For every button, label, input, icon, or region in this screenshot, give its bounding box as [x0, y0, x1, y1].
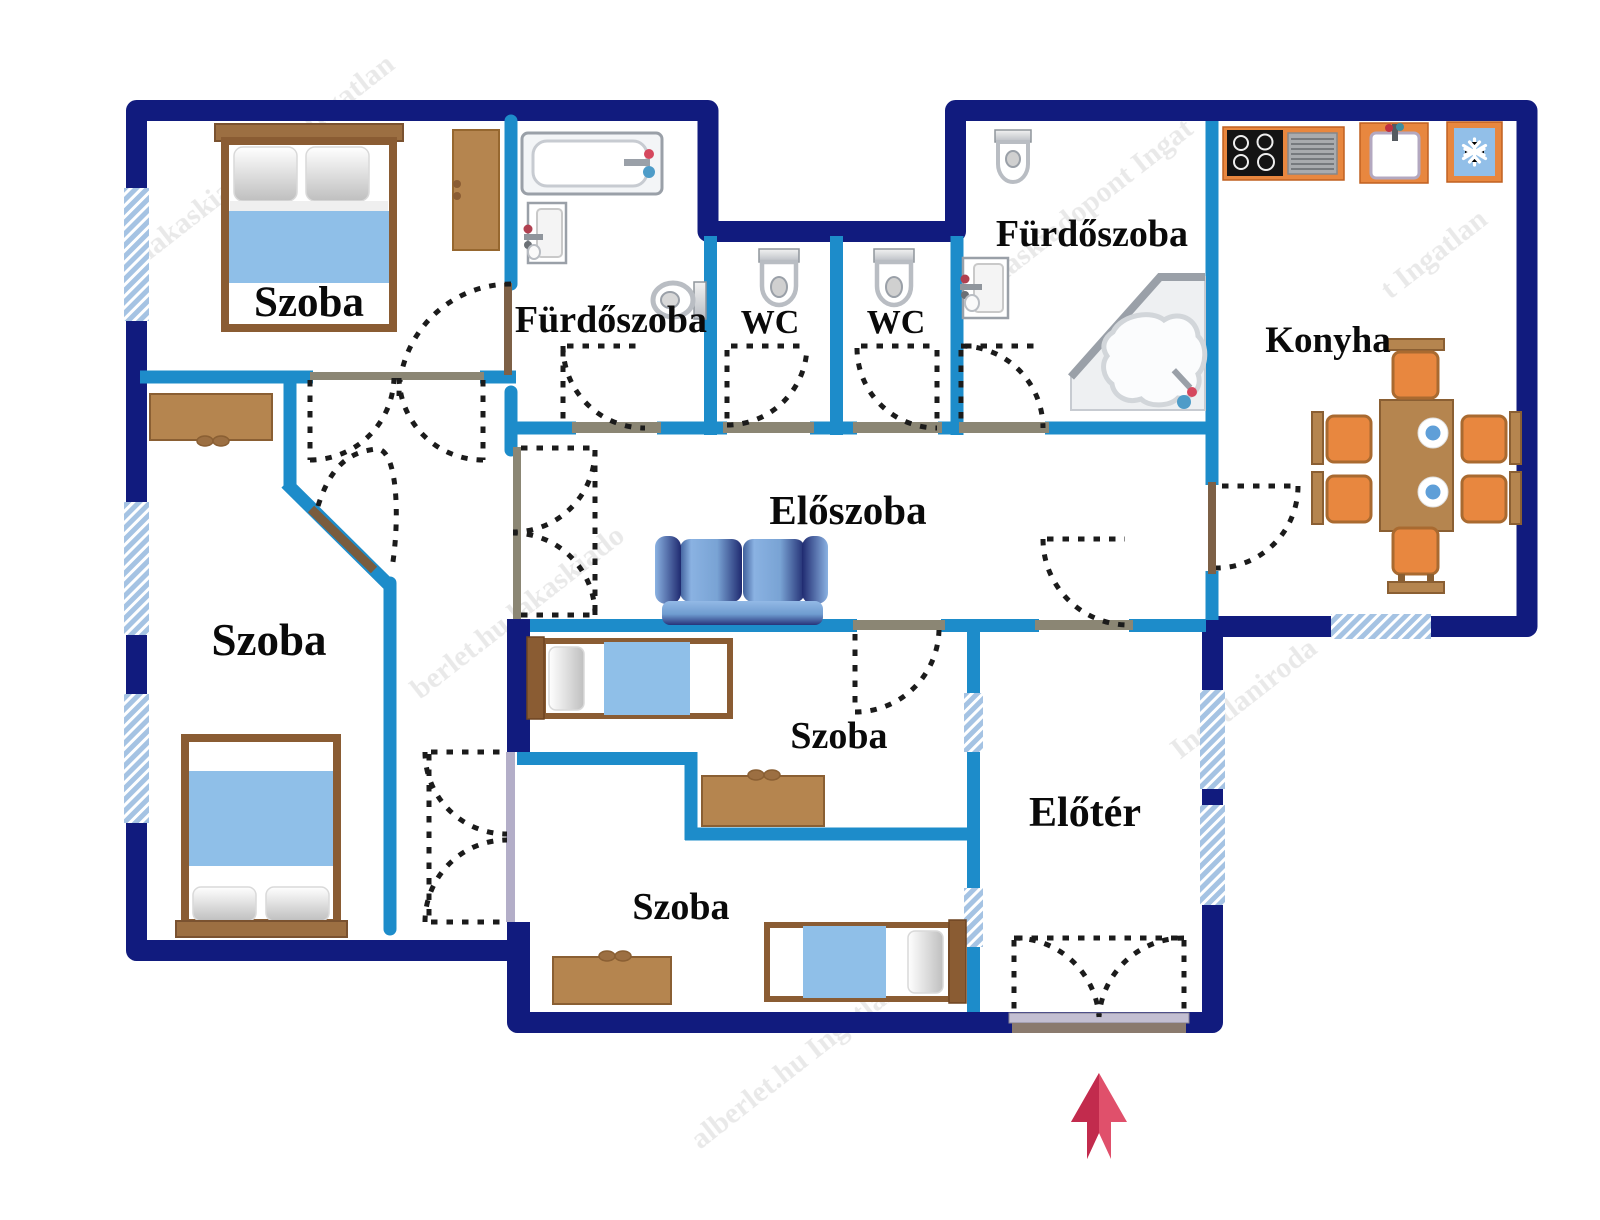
- svg-text:Előtér: Előtér: [1029, 790, 1141, 836]
- svg-text:Előszoba: Előszoba: [769, 487, 926, 533]
- svg-text:Fürdőszoba: Fürdőszoba: [996, 213, 1188, 255]
- svg-text:Szoba: Szoba: [632, 886, 729, 928]
- svg-text:Szoba: Szoba: [211, 615, 326, 665]
- svg-text:Fürdőszoba: Fürdőszoba: [515, 299, 707, 341]
- svg-text:Szoba: Szoba: [790, 715, 887, 757]
- svg-text:WC: WC: [741, 304, 800, 341]
- svg-text:WC: WC: [867, 304, 926, 341]
- svg-text:Konyha: Konyha: [1265, 320, 1390, 361]
- svg-text:Szoba: Szoba: [254, 279, 364, 326]
